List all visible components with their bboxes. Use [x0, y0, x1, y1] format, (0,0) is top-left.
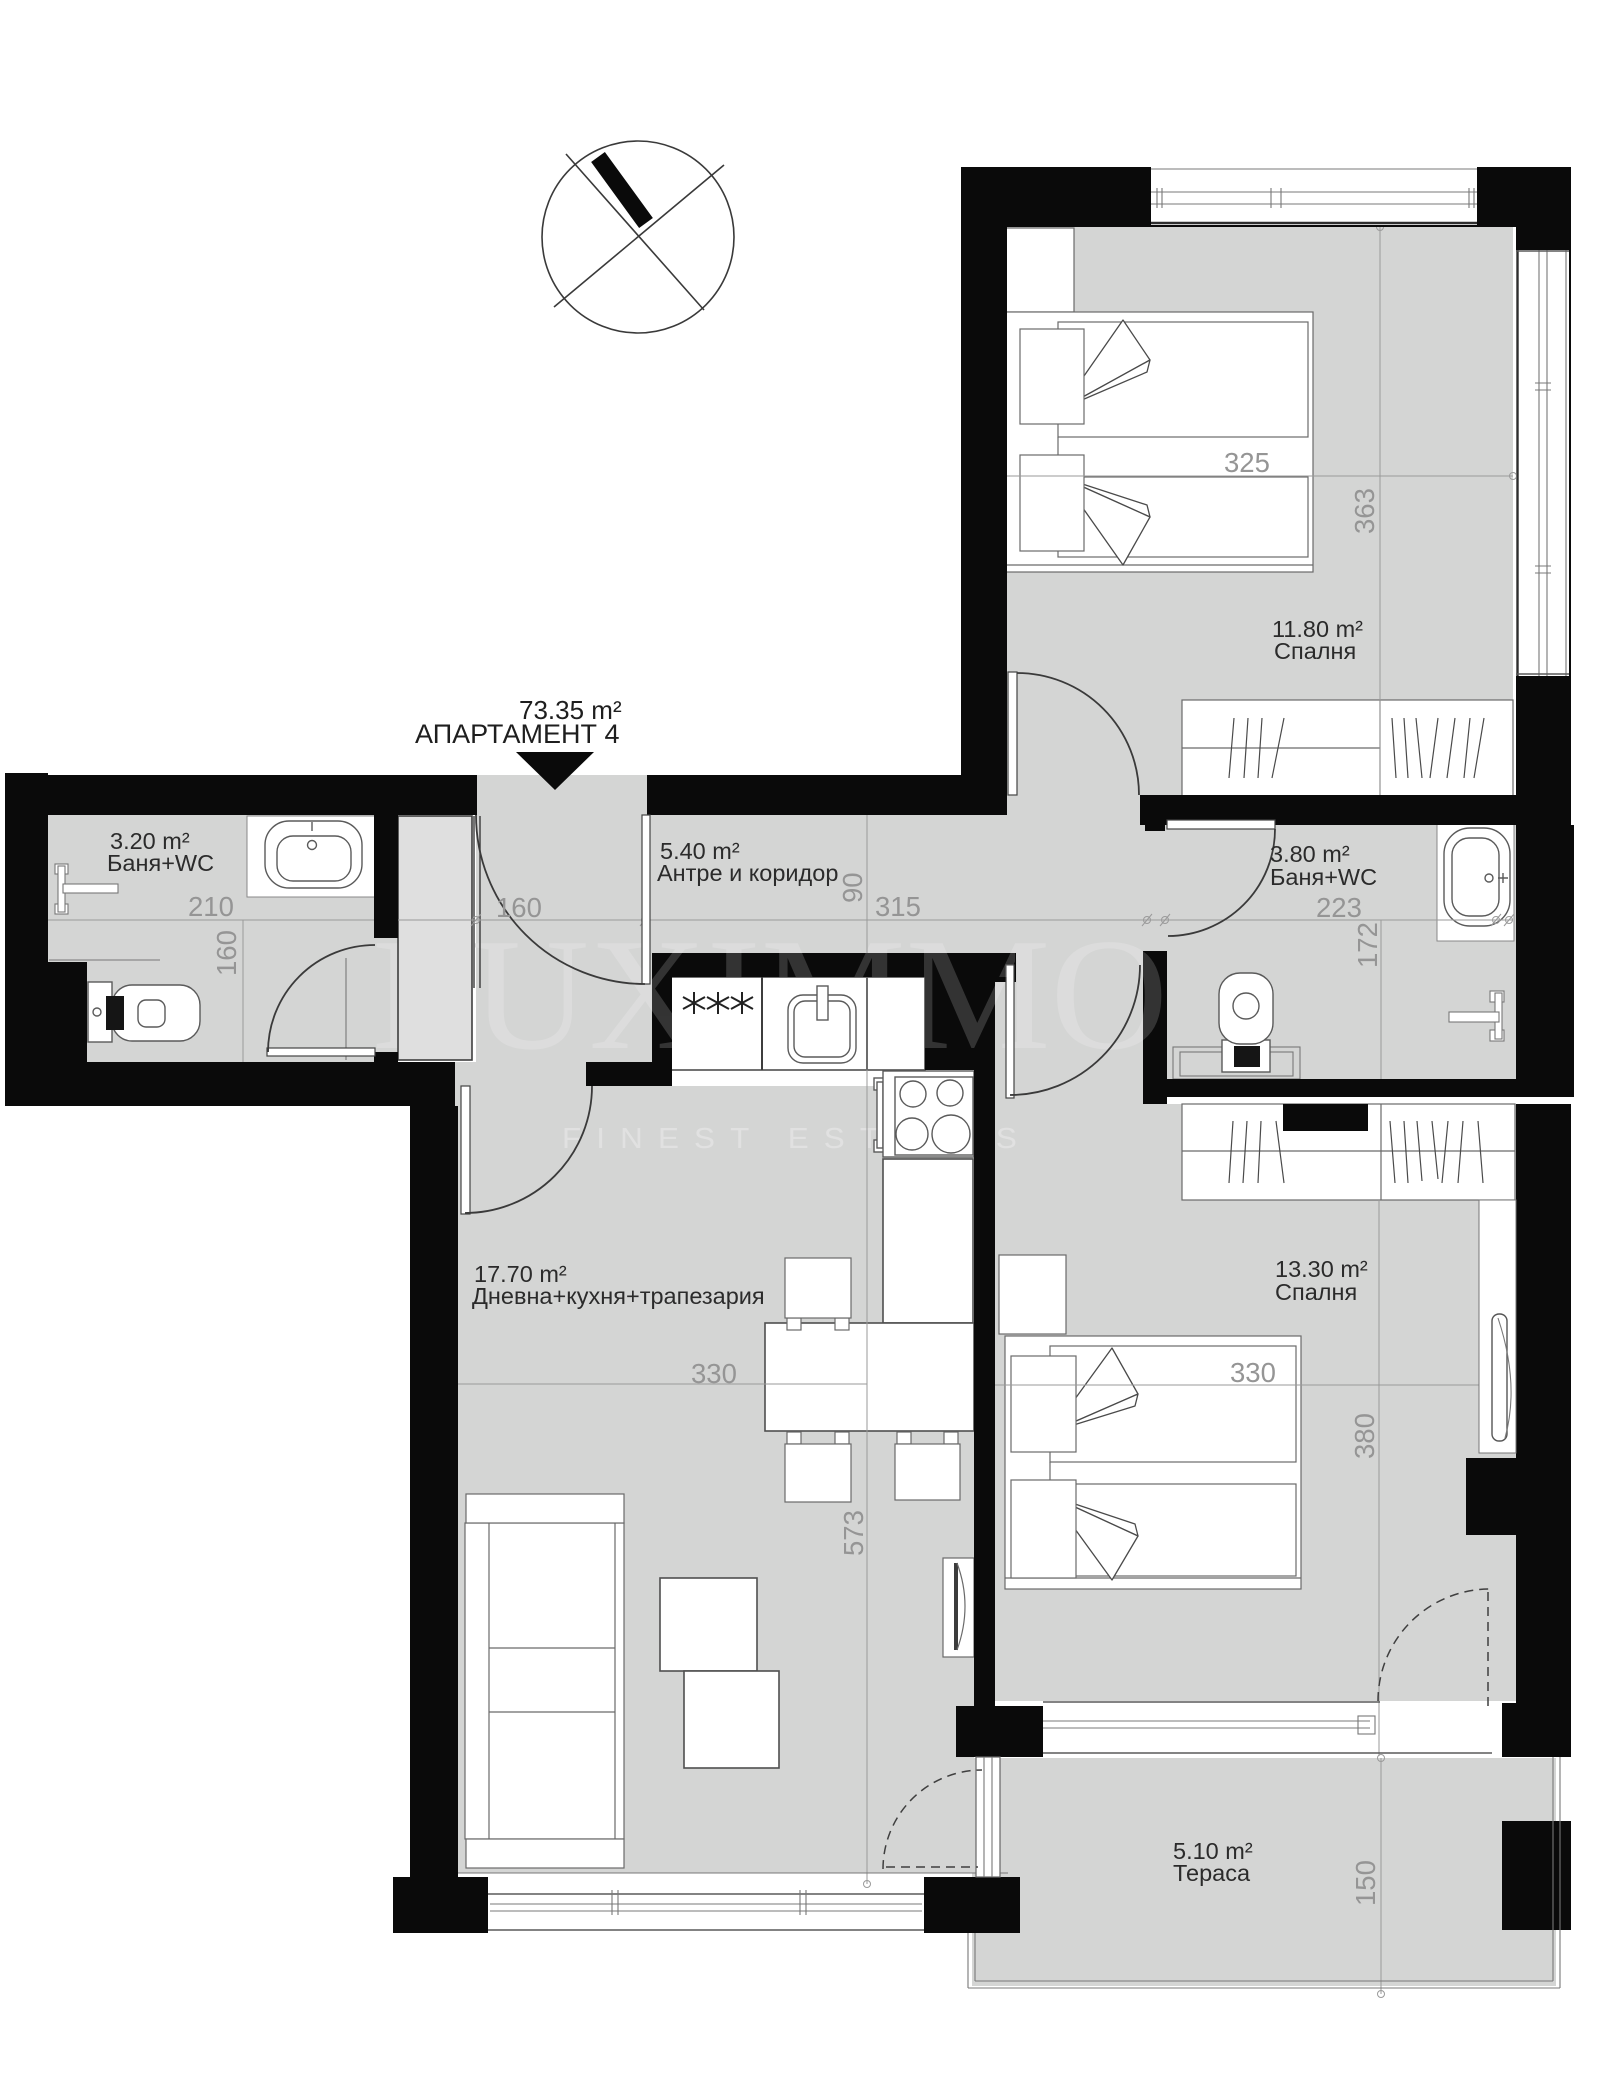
- svg-text:160: 160: [496, 892, 542, 923]
- svg-text:315: 315: [875, 891, 921, 922]
- svg-text:Тераса: Тераса: [1173, 1860, 1251, 1886]
- svg-text:160: 160: [211, 930, 242, 976]
- svg-text:АПАРТАМЕНТ 4: АПАРТАМЕНТ 4: [415, 719, 620, 749]
- svg-text:330: 330: [1230, 1357, 1276, 1388]
- svg-text:90: 90: [837, 872, 868, 903]
- svg-text:325: 325: [1224, 447, 1270, 478]
- svg-text:Спалня: Спалня: [1275, 1279, 1357, 1305]
- svg-text:Баня+WC: Баня+WC: [1270, 864, 1377, 890]
- svg-text:Баня+WC: Баня+WC: [107, 850, 214, 876]
- svg-text:Дневна+кухня+трапезария: Дневна+кухня+трапезария: [472, 1283, 765, 1309]
- svg-text:330: 330: [691, 1358, 737, 1389]
- svg-text:363: 363: [1349, 488, 1380, 534]
- svg-text:Спалня: Спалня: [1274, 638, 1356, 664]
- svg-text:223: 223: [1316, 892, 1362, 923]
- svg-text:573: 573: [838, 1510, 869, 1556]
- svg-text:150: 150: [1350, 1860, 1381, 1906]
- svg-text:210: 210: [188, 891, 234, 922]
- svg-text:172: 172: [1352, 922, 1383, 968]
- svg-text:380: 380: [1349, 1413, 1380, 1459]
- svg-text:Антре и коридор: Антре и коридор: [657, 860, 838, 886]
